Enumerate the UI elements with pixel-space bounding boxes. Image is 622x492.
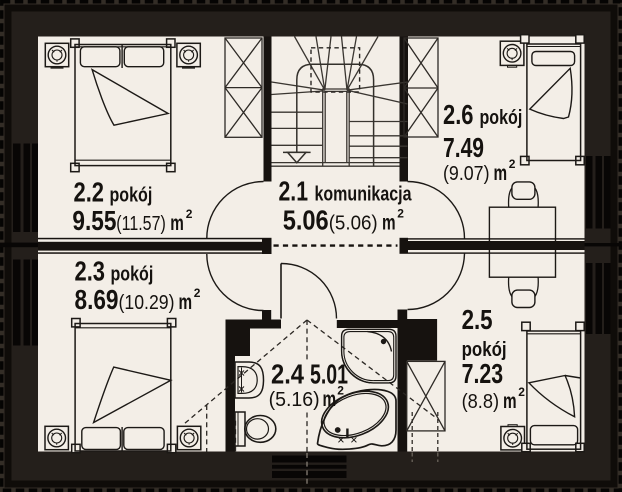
svg-text:(5.06): (5.06) bbox=[329, 212, 378, 235]
svg-text:(10.29): (10.29) bbox=[119, 291, 175, 314]
svg-text:(11.57): (11.57) bbox=[116, 212, 166, 235]
svg-text:m: m bbox=[179, 291, 193, 314]
svg-text:2: 2 bbox=[518, 385, 525, 399]
svg-text:9.55: 9.55 bbox=[72, 205, 116, 236]
svg-text:m: m bbox=[494, 162, 508, 185]
svg-text:2: 2 bbox=[509, 157, 516, 171]
svg-text:pokój: pokój bbox=[110, 185, 153, 207]
svg-text:2: 2 bbox=[397, 207, 404, 221]
svg-text:2.6: 2.6 bbox=[443, 99, 474, 130]
svg-text:pokój: pokój bbox=[111, 264, 154, 286]
svg-text:(5.16): (5.16) bbox=[269, 388, 320, 411]
svg-text:5.06: 5.06 bbox=[283, 205, 329, 236]
svg-text:m: m bbox=[382, 212, 396, 235]
svg-text:2.5: 2.5 bbox=[462, 304, 493, 335]
svg-text:2: 2 bbox=[337, 384, 344, 398]
svg-text:m: m bbox=[170, 212, 184, 235]
svg-text:(9.07): (9.07) bbox=[443, 162, 490, 185]
svg-text:m: m bbox=[323, 388, 337, 411]
svg-text:(8.8): (8.8) bbox=[462, 390, 500, 413]
svg-text:2: 2 bbox=[194, 286, 201, 300]
svg-text:8.69: 8.69 bbox=[75, 284, 119, 315]
svg-text:2.4: 2.4 bbox=[271, 359, 304, 390]
svg-text:komunikacja: komunikacja bbox=[315, 184, 413, 206]
svg-text:2: 2 bbox=[186, 207, 193, 221]
svg-text:2.2: 2.2 bbox=[74, 177, 105, 208]
svg-text:m: m bbox=[503, 390, 517, 413]
svg-text:7.23: 7.23 bbox=[462, 358, 504, 389]
svg-text:7.49: 7.49 bbox=[443, 132, 484, 163]
svg-text:2.1: 2.1 bbox=[279, 176, 309, 207]
svg-text:pokój: pokój bbox=[480, 107, 523, 129]
svg-text:2.3: 2.3 bbox=[75, 256, 106, 287]
